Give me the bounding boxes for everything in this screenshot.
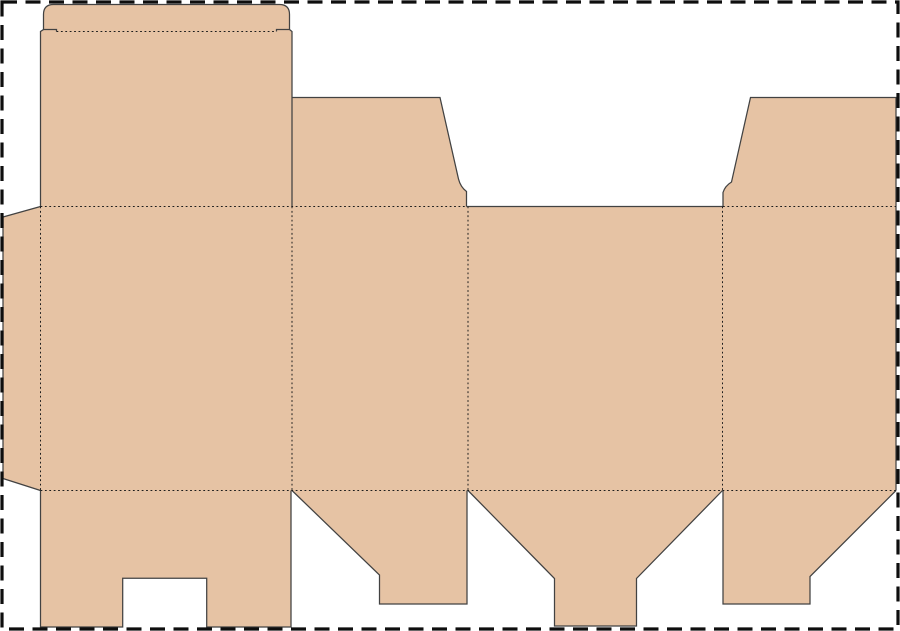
top-dust-flap-left[interactable] [292,98,467,207]
dieline-editor-canvas [0,0,900,631]
dieline-drawing [0,0,900,631]
top-dust-flap-right[interactable] [723,98,896,207]
glue-tab[interactable] [3,207,41,491]
lid-and-tuck-flap[interactable] [41,5,293,207]
